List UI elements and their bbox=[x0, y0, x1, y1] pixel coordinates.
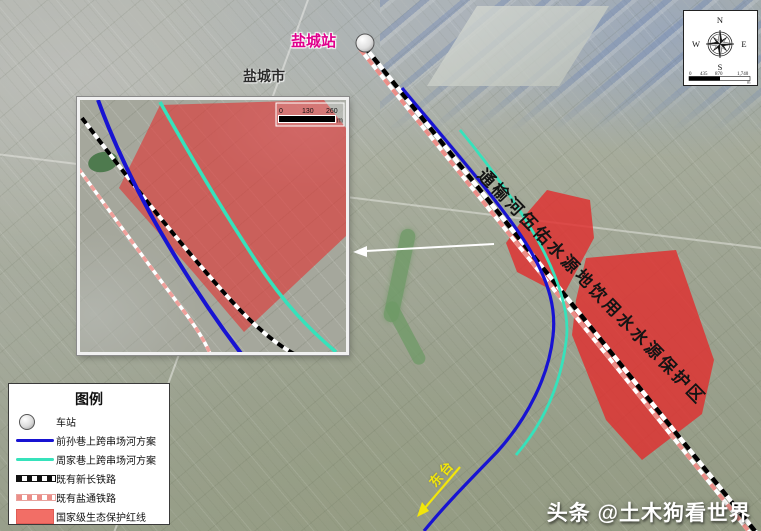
yantong-rail-swatch bbox=[16, 494, 56, 501]
legend-title: 图例 bbox=[16, 389, 162, 409]
compass-north-label: N bbox=[717, 15, 723, 25]
compass-box: N E S W bbox=[683, 10, 758, 86]
plan-a-line-blue bbox=[402, 88, 554, 531]
inset-scale-tick: 260 bbox=[326, 108, 338, 115]
eco-redline-swatch bbox=[16, 509, 54, 524]
legend-item-xinchang-rail: 既有新长铁路 bbox=[16, 469, 162, 488]
inset-scale-unit: m bbox=[337, 118, 343, 125]
inset-scalebar: 0 130 260 m bbox=[276, 103, 344, 126]
plan-a-swatch bbox=[16, 439, 54, 443]
inset-scale-tick: 130 bbox=[302, 108, 314, 115]
compass-east-label: E bbox=[741, 39, 746, 49]
city-label: 盐城市 bbox=[243, 66, 285, 86]
legend-label: 国家级生态保护红线 bbox=[56, 509, 146, 524]
station-label: 盐城站 bbox=[291, 30, 336, 51]
legend-item-station: 车站 bbox=[16, 412, 162, 431]
legend-label: 车站 bbox=[56, 414, 76, 429]
compass-south-label: S bbox=[718, 62, 723, 72]
legend-item-plan-b: 周家巷上跨串场河方案 bbox=[16, 450, 162, 469]
main-scale-unit: m bbox=[747, 80, 751, 85]
inset-detail-map: 0 130 260 m bbox=[77, 97, 349, 355]
compass-rose: N E S W bbox=[684, 11, 756, 84]
station-marker bbox=[356, 34, 374, 52]
station-swatch bbox=[19, 414, 35, 430]
legend: 图例 车站 前孙巷上跨串场河方案 周家巷上跨串场河方案 既有新长铁路 既有盐通铁… bbox=[8, 383, 170, 525]
legend-label: 周家巷上跨串场河方案 bbox=[56, 452, 156, 467]
xinchang-rail-swatch bbox=[16, 475, 56, 482]
legend-item-plan-a: 前孙巷上跨串场河方案 bbox=[16, 431, 162, 450]
inset-scale-tick: 0 bbox=[279, 108, 283, 115]
plan-b-swatch bbox=[16, 458, 54, 462]
legend-item-eco-redline: 国家级生态保护红线 bbox=[16, 507, 162, 526]
watermark: 头条 @土木狗看世界 bbox=[547, 497, 751, 527]
legend-label: 既有盐通铁路 bbox=[56, 490, 116, 505]
legend-label: 既有新长铁路 bbox=[56, 471, 116, 486]
inset-pointer-arrow bbox=[353, 244, 494, 257]
compass-star bbox=[706, 30, 734, 58]
satellite-map: 盐城站 盐城市 通榆河伍佑水源地饮用水水源保护区 东台 0 130 260 bbox=[0, 0, 761, 531]
xinchang-railway-line bbox=[364, 46, 759, 531]
main-scalebar: 0 435 870 1,740 m bbox=[689, 72, 751, 84]
inset-overlay: 0 130 260 m bbox=[80, 100, 346, 352]
legend-label: 前孙巷上跨串场河方案 bbox=[56, 433, 156, 448]
compass-west-label: W bbox=[692, 39, 700, 49]
legend-item-yantong-rail: 既有盐通铁路 bbox=[16, 488, 162, 507]
